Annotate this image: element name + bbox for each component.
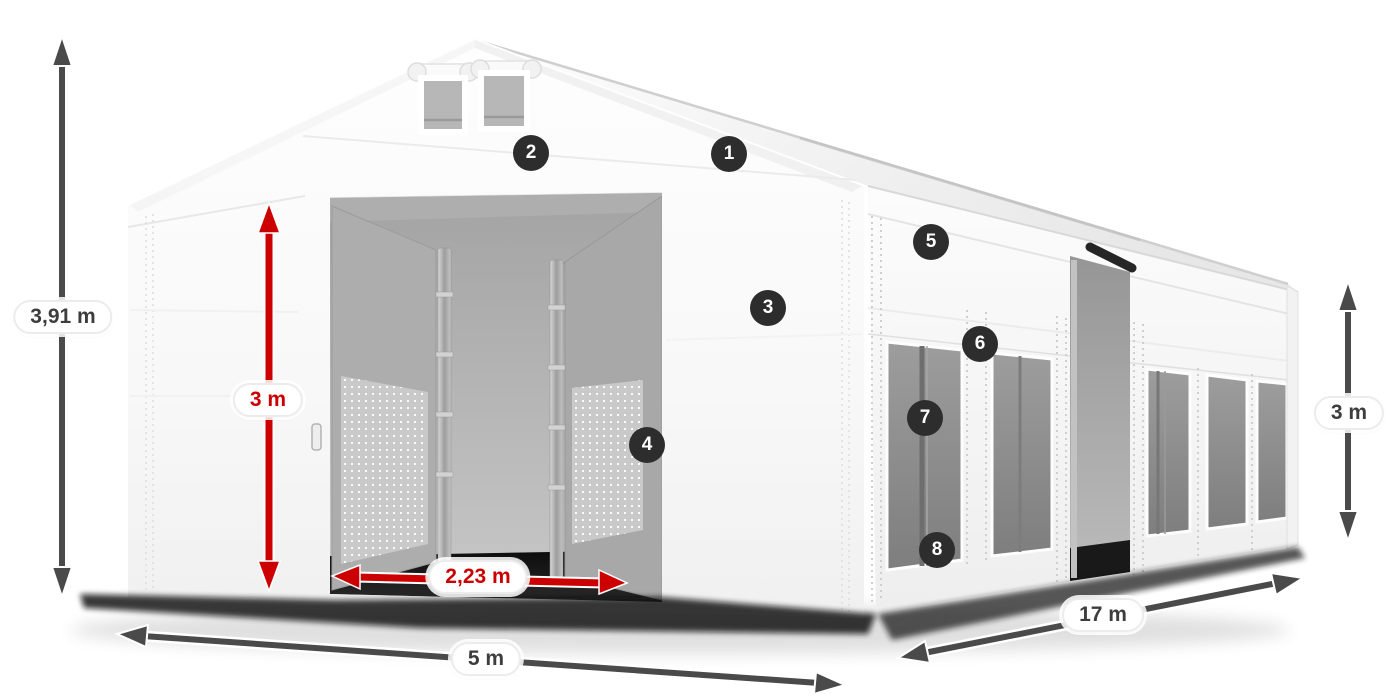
feature-marker-5: 5 (913, 224, 949, 260)
dimension-label-length: 17 m (1062, 598, 1144, 632)
entrance-interior (330, 193, 662, 603)
dimension-label-entrance-width: 2,23 m (428, 560, 527, 594)
dimension-label-total-height: 3,91 m (13, 300, 112, 334)
feature-marker-1: 1 (711, 136, 747, 172)
door-handle (312, 424, 321, 450)
dimension-label-width: 5 m (451, 642, 521, 676)
feature-marker-2: 2 (513, 135, 549, 171)
feature-marker-4: 4 (629, 427, 665, 463)
dimension-label-side-height: 3 m (1314, 396, 1384, 430)
feature-marker-7: 7 (907, 400, 943, 436)
feature-marker-3: 3 (750, 290, 786, 326)
feature-marker-8: 8 (919, 532, 955, 568)
dimension-label-entrance-height: 3 m (233, 383, 303, 417)
tent-illustration (0, 0, 1400, 700)
feature-marker-6: 6 (962, 326, 998, 362)
product-dimension-diagram: 3,91 m 3 m 2,23 m 5 m 17 m 3 m 1 2 3 4 5… (0, 0, 1400, 700)
